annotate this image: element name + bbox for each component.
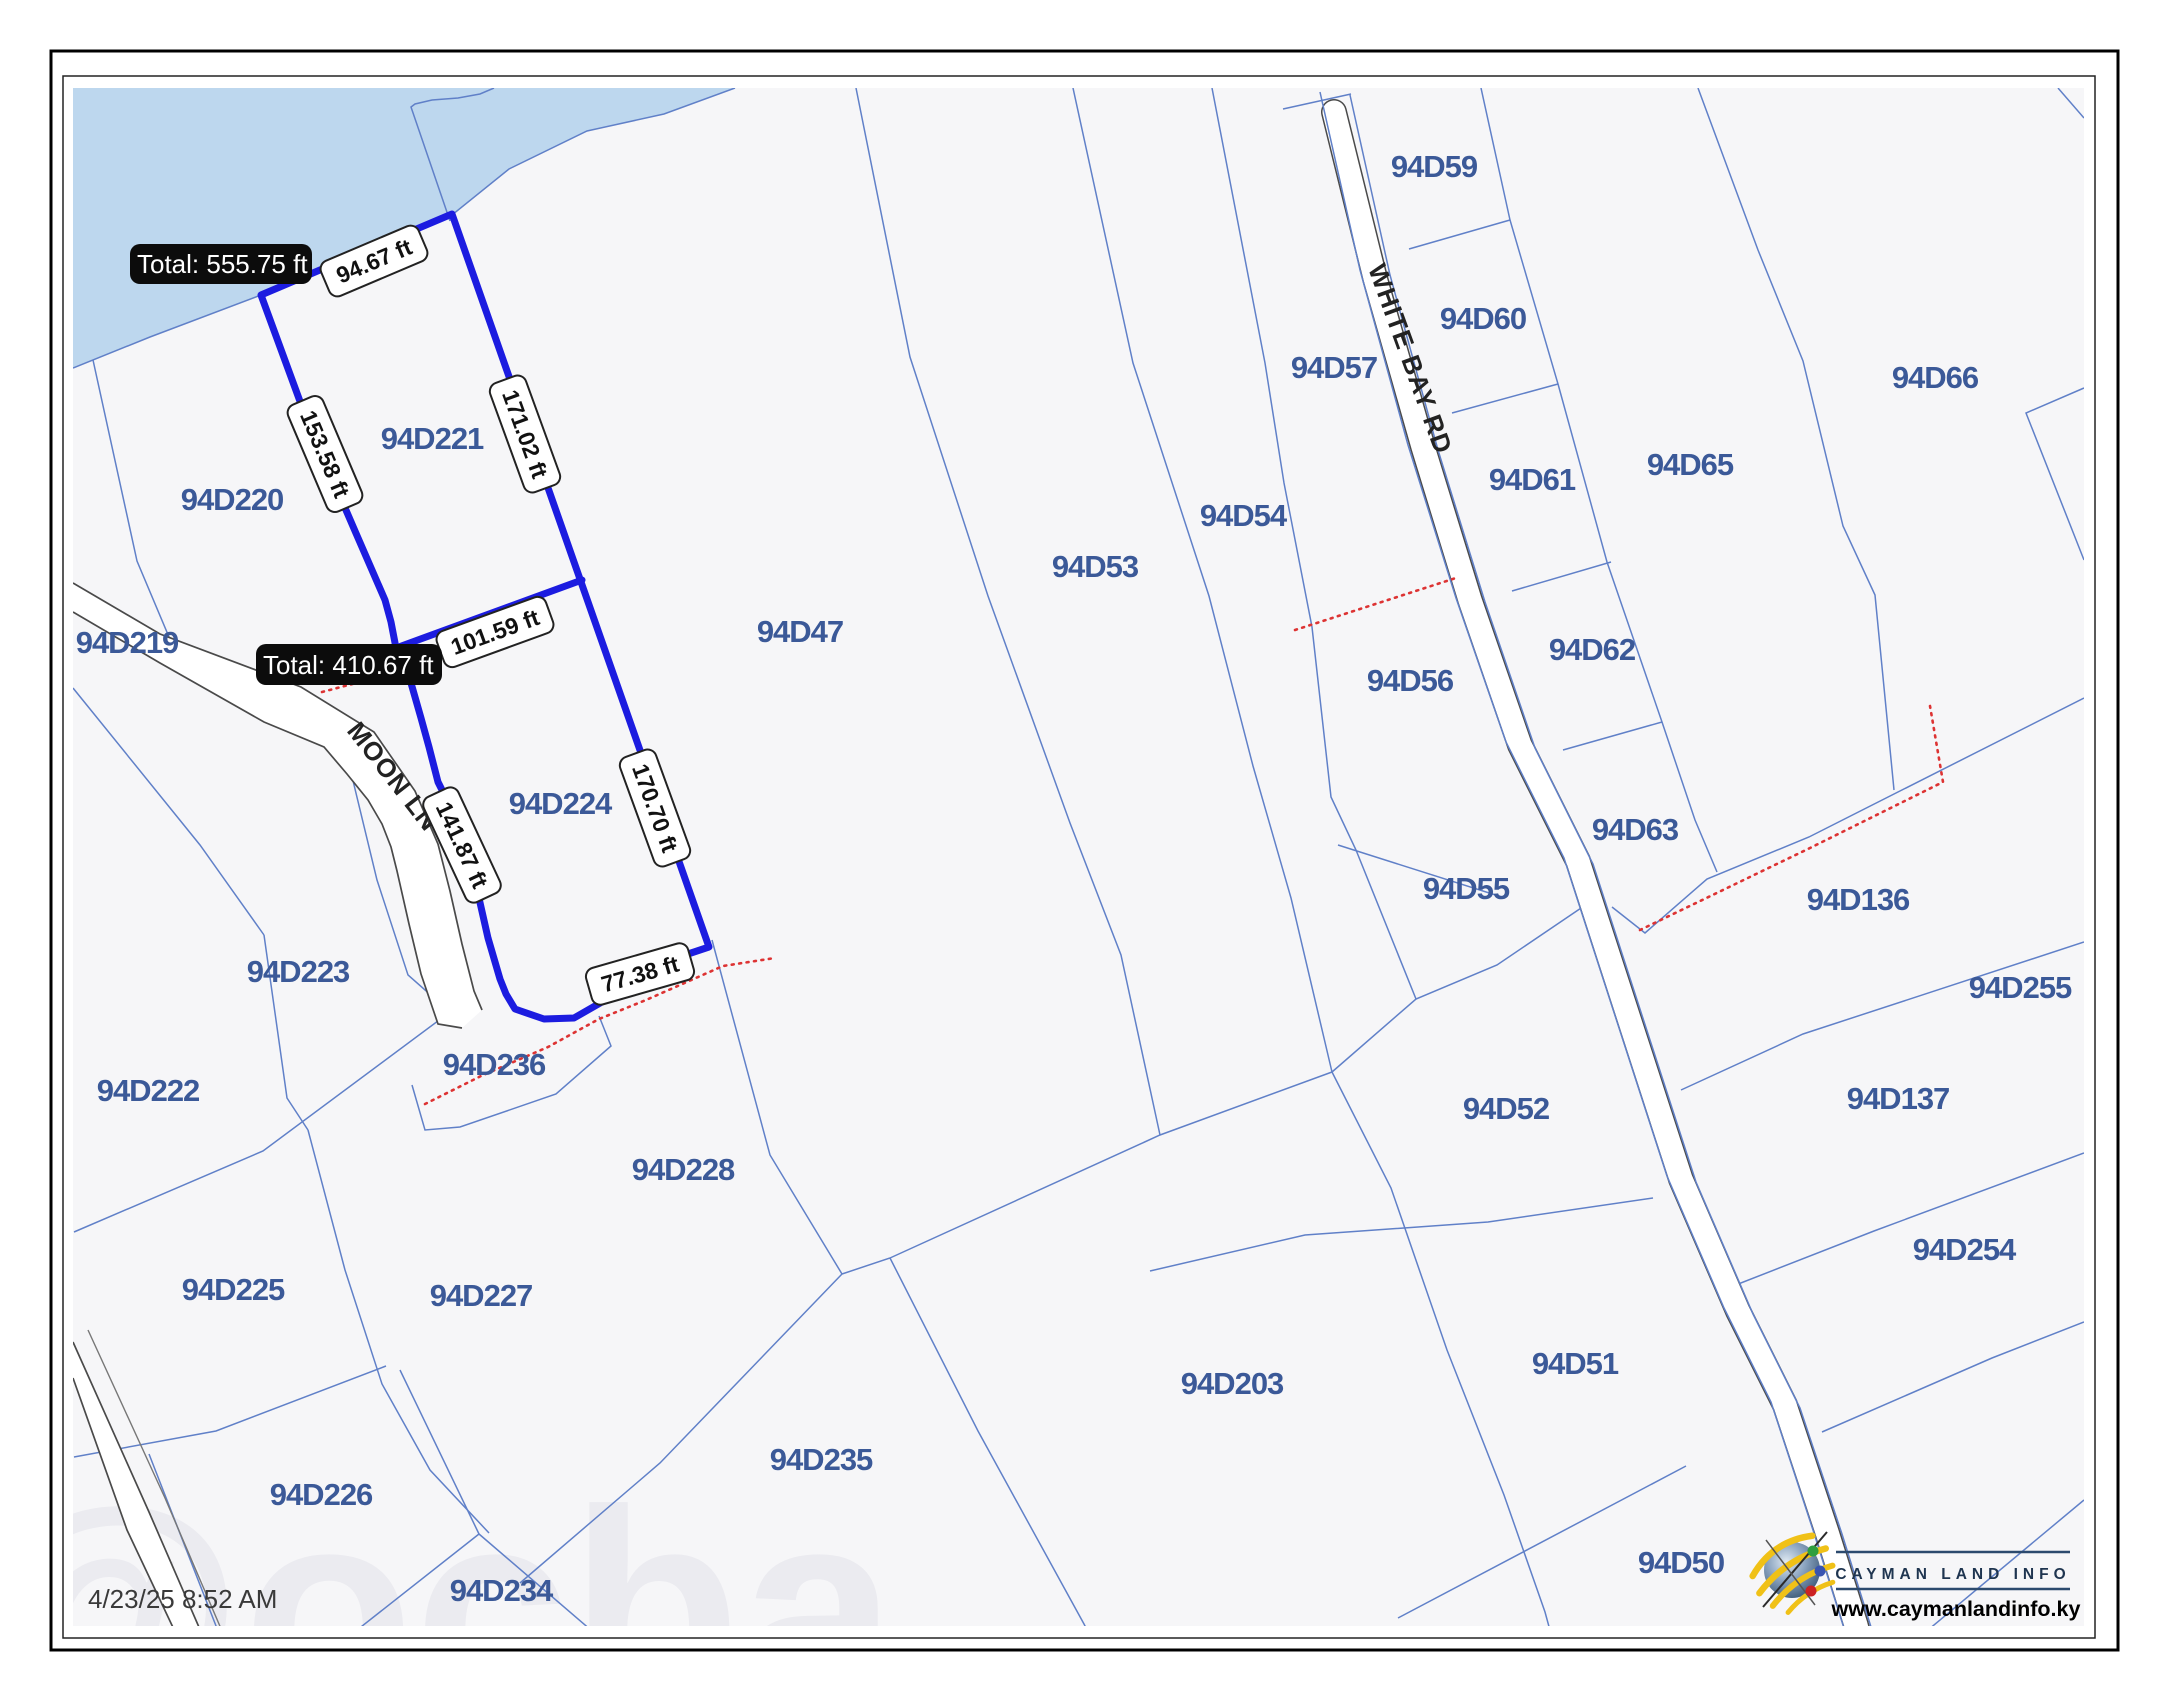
svg-text:94D235: 94D235 [770,1442,873,1477]
svg-text:94D224: 94D224 [509,786,613,821]
svg-text:94D65: 94D65 [1647,447,1734,482]
svg-text:94D203: 94D203 [1181,1366,1284,1401]
svg-text:94D61: 94D61 [1489,462,1576,497]
svg-text:94D51: 94D51 [1532,1346,1619,1381]
svg-text:94D62: 94D62 [1549,632,1635,667]
svg-text:94D227: 94D227 [430,1278,533,1313]
svg-text:94D47: 94D47 [757,614,843,649]
svg-text:94D219: 94D219 [76,625,179,660]
svg-text:94D228: 94D228 [632,1152,735,1187]
svg-text:94D52: 94D52 [1463,1091,1549,1126]
svg-text:94D236: 94D236 [443,1047,546,1082]
svg-text:94D66: 94D66 [1892,360,1979,395]
svg-text:94D55: 94D55 [1423,871,1510,906]
svg-text:94D60: 94D60 [1440,301,1526,336]
svg-text:94D56: 94D56 [1367,663,1454,698]
svg-text:94D226: 94D226 [270,1477,373,1512]
svg-text:94D255: 94D255 [1969,970,2072,1005]
svg-text:94D221: 94D221 [381,421,484,456]
svg-text:94D53: 94D53 [1052,549,1139,584]
svg-text:Total: 555.75 ft: Total: 555.75 ft [137,249,308,279]
svg-text:4/23/25 8:52 AM: 4/23/25 8:52 AM [88,1584,277,1614]
svg-text:94D54: 94D54 [1200,498,1288,533]
svg-text:94D57: 94D57 [1291,350,1377,385]
svg-text:CAYMAN LAND INFO: CAYMAN LAND INFO [1835,1566,2070,1583]
svg-text:94D137: 94D137 [1847,1081,1950,1116]
svg-text:94D50: 94D50 [1638,1545,1724,1580]
svg-text:www.caymanlandinfo.ky: www.caymanlandinfo.ky [1831,1597,2081,1621]
svg-text:94D63: 94D63 [1592,812,1679,847]
svg-text:94D136: 94D136 [1807,882,1910,917]
svg-text:Total: 410.67 ft: Total: 410.67 ft [263,650,434,680]
svg-text:94D59: 94D59 [1391,149,1478,184]
svg-text:94D220: 94D220 [181,482,284,517]
svg-text:94D225: 94D225 [182,1272,285,1307]
svg-text:94D222: 94D222 [97,1073,200,1108]
svg-text:94D234: 94D234 [450,1573,554,1608]
svg-text:94D223: 94D223 [247,954,350,989]
svg-text:94D254: 94D254 [1913,1232,2017,1267]
